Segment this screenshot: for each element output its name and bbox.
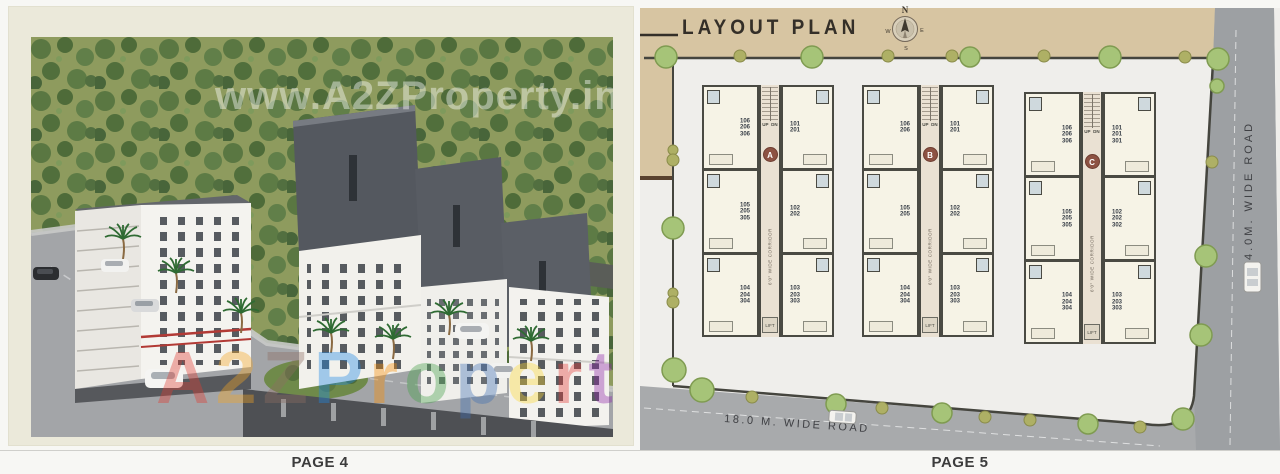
unit-cell: 103 203 303 xyxy=(781,253,834,337)
unit-cell: 105 205 305 xyxy=(702,169,759,254)
page-divider-line xyxy=(0,450,1280,451)
block-c: 106 206 306 101 201 301 105 205 305 102 … xyxy=(1024,92,1156,344)
unit-numbers: 106 206 306 xyxy=(740,118,750,138)
unit-numbers: 103 203 303 xyxy=(790,285,800,305)
block-badge: A xyxy=(763,147,778,162)
car xyxy=(131,299,159,312)
car xyxy=(455,323,489,339)
stairs-dn-label: DN xyxy=(1093,129,1100,134)
unit-numbers: 103 203 303 xyxy=(1112,292,1122,312)
unit-numbers: 105 205 305 xyxy=(1062,209,1072,229)
unit-numbers: 105 205 305 xyxy=(740,202,750,222)
unit-cell: 103 203 303 xyxy=(1103,260,1156,344)
unit-cell: 106 206 306 xyxy=(1024,92,1081,177)
compass-w: W xyxy=(885,29,891,35)
lift-shaft: LIFT xyxy=(922,317,938,333)
page-4-panel: www.A2ZProperty.in A2ZProperty xyxy=(0,0,640,474)
unit-cell: 104 204 304 xyxy=(702,253,759,337)
watermark-top: www.A2ZProperty.in xyxy=(214,74,613,118)
unit-numbers: 102 202 xyxy=(950,205,960,218)
unit-numbers: 104 204 304 xyxy=(900,285,910,305)
car xyxy=(101,259,129,272)
unit-cell: 102 202 xyxy=(941,169,994,254)
corridor-label: 6'0" WIDE CORRIDOR xyxy=(928,173,933,285)
block-badge: C xyxy=(1085,154,1100,169)
brochure-spread: www.A2ZProperty.in A2ZProperty xyxy=(0,0,1280,474)
car xyxy=(33,267,59,280)
corridor: UPDN C 6'0" WIDE CORRIDOR LIFT xyxy=(1081,92,1103,344)
page-4-label: PAGE 4 xyxy=(0,454,640,471)
unit-cell: 106 206 306 xyxy=(702,85,759,170)
unit-numbers: 101 201 xyxy=(950,121,960,134)
corridor-label: 6'0" WIDE CORRIDOR xyxy=(768,173,773,285)
unit-cell: 105 205 xyxy=(862,169,919,254)
page-5-label: PAGE 5 xyxy=(640,454,1280,471)
corridor: UPDN B 6'0" WIDE CORRIDOR LIFT xyxy=(919,85,941,337)
unit-numbers: 106 206 xyxy=(900,121,910,134)
unit-numbers: 102 202 302 xyxy=(1112,209,1122,229)
unit-numbers: 101 201 301 xyxy=(1112,125,1122,145)
building-render-photo: www.A2ZProperty.in A2ZProperty xyxy=(31,37,613,437)
lift-shaft: LIFT xyxy=(1084,324,1100,340)
block-b: 106 206 101 201 105 205 102 202 104 204 … xyxy=(862,85,994,337)
page-5-panel: N E W S 24.0M. WIDE ROAD 18.0 M. WIDE RO… xyxy=(640,0,1280,474)
unit-cell: 104 204 304 xyxy=(862,253,919,337)
stairs-up-label: UP xyxy=(922,122,928,127)
corridor: UPDN A 6'0" WIDE CORRIDOR LIFT xyxy=(759,85,781,337)
car xyxy=(145,369,183,388)
stairs-up-label: UP xyxy=(1084,129,1090,134)
unit-numbers: 104 204 304 xyxy=(1062,292,1072,312)
unit-cell: 105 205 305 xyxy=(1024,176,1081,261)
right-road-label: 24.0M. WIDE ROAD xyxy=(1243,121,1255,269)
unit-cell: 101 201 xyxy=(941,85,994,170)
unit-numbers: 104 204 304 xyxy=(740,285,750,305)
unit-cell: 101 201 301 xyxy=(1103,92,1156,177)
unit-cell: 102 202 xyxy=(781,169,834,254)
compass-s: S xyxy=(904,46,908,52)
unit-cell: 102 202 302 xyxy=(1103,176,1156,261)
staircase xyxy=(922,87,938,121)
block-badge: B xyxy=(923,147,938,162)
staircase xyxy=(762,87,778,121)
unit-cell: 106 206 xyxy=(862,85,919,170)
block-a: 106 206 306 101 201 105 205 305 102 202 … xyxy=(702,85,834,337)
tower-balcony-face xyxy=(75,205,141,389)
stairs-dn-label: DN xyxy=(771,122,778,127)
stairs-dn-label: DN xyxy=(931,122,938,127)
unit-cell: 101 201 xyxy=(781,85,834,170)
photo-frame: www.A2ZProperty.in A2ZProperty xyxy=(8,6,634,446)
unit-cell: 103 203 303 xyxy=(941,253,994,337)
staircase xyxy=(1084,94,1100,128)
unit-numbers: 101 201 xyxy=(790,121,800,134)
compass-e: E xyxy=(920,28,924,34)
render-illustration: www.A2ZProperty.in xyxy=(31,37,613,437)
lift-shaft: LIFT xyxy=(762,317,778,333)
compass-n: N xyxy=(902,5,909,15)
unit-numbers: 103 203 303 xyxy=(950,285,960,305)
unit-cell: 104 204 304 xyxy=(1024,260,1081,344)
unit-numbers: 106 206 306 xyxy=(1062,125,1072,145)
car xyxy=(829,410,857,424)
stair-core-panel xyxy=(415,157,507,289)
stairs-up-label: UP xyxy=(762,122,768,127)
corridor-label: 6'0" WIDE CORRIDOR xyxy=(1090,180,1095,292)
car xyxy=(489,363,519,378)
unit-numbers: 102 202 xyxy=(790,205,800,218)
car xyxy=(1244,262,1261,292)
unit-numbers: 105 205 xyxy=(900,205,910,218)
layout-plan-title: LAYOUT PLAN xyxy=(682,16,859,41)
